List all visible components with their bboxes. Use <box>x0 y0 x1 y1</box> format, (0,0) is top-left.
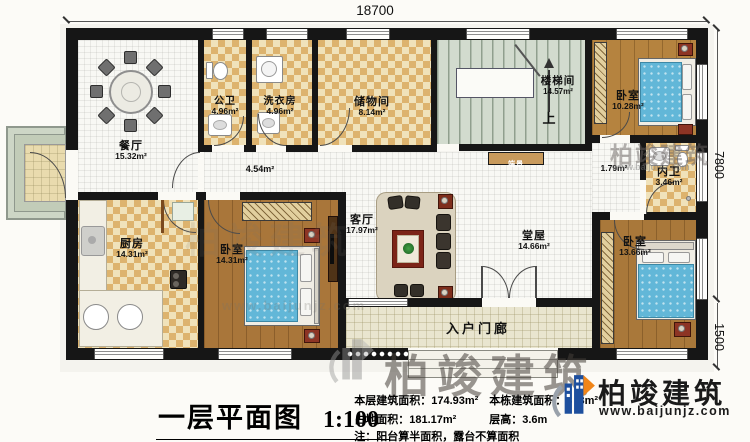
pillow-symbol <box>682 64 692 90</box>
cushion-symbol <box>436 233 451 250</box>
rect <box>342 348 350 380</box>
window <box>218 349 292 359</box>
lamp-symbol <box>308 332 315 339</box>
window <box>94 349 164 359</box>
door-opening <box>212 145 244 152</box>
floor-drain <box>686 196 691 201</box>
watermark-brand: 柏竣建筑 <box>185 212 353 264</box>
stat-story-height: 层高：3.6m <box>477 399 547 439</box>
span: 层高： <box>489 414 522 426</box>
lamp-symbol <box>441 289 448 296</box>
washing-machine-drum <box>261 61 277 77</box>
room-label-main-hall: 堂屋14.66m² <box>498 230 570 252</box>
wall-segment <box>437 144 592 151</box>
lamp-symbol <box>441 197 448 204</box>
console-table-label: 端景 <box>508 161 524 168</box>
room-label-kitchen: 厨房14.31m² <box>98 238 166 260</box>
rect <box>580 379 583 382</box>
room-area: 13.66m² <box>598 248 672 258</box>
cushion-symbol <box>410 284 424 297</box>
rect <box>567 394 570 397</box>
cushion-symbol <box>436 252 451 269</box>
nightstand-symbol <box>678 124 693 135</box>
lamp-symbol <box>678 325 685 332</box>
chair-symbol <box>90 85 103 98</box>
dimension-line <box>68 21 707 22</box>
span: 一层平面图 <box>158 403 303 433</box>
cushion-symbol <box>436 214 451 231</box>
room-name: 楼梯间 <box>528 76 588 88</box>
toilet-symbol <box>206 62 213 79</box>
span: 上 <box>542 111 555 126</box>
stove-symbol <box>170 270 187 289</box>
dimension-right-porch: 1500 <box>712 318 726 356</box>
chair-symbol <box>124 119 137 132</box>
room-label-stairwell: 楼梯间14.57m² <box>528 76 588 97</box>
dimension-right-main: 7800 <box>712 146 726 184</box>
dining-table-inner <box>121 82 141 102</box>
window <box>212 29 244 39</box>
lamp-symbol <box>681 45 688 52</box>
door-opening <box>158 192 196 200</box>
span: 3.6m <box>522 414 547 426</box>
dimension-tick <box>703 16 710 23</box>
window <box>346 29 390 39</box>
door-opening <box>256 145 286 152</box>
door-leaf <box>161 200 164 233</box>
door-opening <box>66 150 78 200</box>
cushion-symbol <box>387 195 404 210</box>
window <box>616 349 688 359</box>
dimension-tick <box>63 16 70 23</box>
stair-arrow-head <box>544 58 554 68</box>
door-opening <box>206 192 240 200</box>
window <box>466 29 530 39</box>
window <box>616 29 688 39</box>
plant-symbol <box>403 243 414 254</box>
window <box>697 238 707 300</box>
chair-symbol <box>158 85 171 98</box>
window <box>266 29 308 39</box>
door-opening <box>482 298 536 307</box>
room-label-dining: 餐厅15.32m² <box>98 140 164 162</box>
polygon <box>583 375 594 396</box>
room-area: 14.57m² <box>528 88 588 97</box>
brand-website: www.baijunjz.com <box>599 404 731 418</box>
kitchen-sink-symbol <box>83 304 109 330</box>
console-table: 端景 <box>488 152 544 165</box>
cushion-symbol <box>404 195 420 209</box>
stair-up-label: 上 <box>538 108 560 128</box>
room-area: 4.96m² <box>246 107 314 117</box>
watermark-url: www.baijunjz.com <box>612 162 690 172</box>
polygon <box>362 339 374 361</box>
room-label-laundry: 洗衣房4.96m² <box>246 96 314 117</box>
stair-landing <box>456 68 534 98</box>
room-label-corridor: 4.54m² <box>230 164 290 174</box>
rect <box>580 386 583 389</box>
cushion-symbol <box>394 284 408 297</box>
path <box>331 351 339 381</box>
span: 入户门廊 <box>446 321 510 336</box>
wall-segment <box>431 40 437 152</box>
floor-plan-page: 端景 餐厅15.32m² 公卫4.96m² 洗衣房4.96m² 储物间8.14m… <box>0 0 750 442</box>
room-area: 4.96m² <box>203 107 247 117</box>
brand-logo-icon <box>549 369 597 423</box>
kitchen-sink-symbol <box>117 304 143 330</box>
room-area: 3.46m² <box>640 178 698 188</box>
door-opening <box>318 145 352 152</box>
burner <box>173 281 179 287</box>
door-opening <box>610 212 644 220</box>
room-label-bedroom-br: 卧室13.66m² <box>598 236 672 258</box>
rect <box>567 388 570 391</box>
room-label-porch: 入户门廊 <box>408 320 548 338</box>
burner <box>173 273 179 279</box>
room-area: 14.31m² <box>98 250 166 260</box>
room-label-public-bath: 公卫4.96m² <box>203 96 247 117</box>
door-leaf <box>481 266 483 298</box>
room-label-storage: 储物间8.14m² <box>332 96 412 118</box>
room-area: 4.54m² <box>230 164 290 174</box>
toilet-bowl-symbol <box>213 62 228 80</box>
watermark-url: www.baijunjz.com <box>222 298 366 313</box>
room-area: 10.28m² <box>596 102 660 112</box>
window <box>697 64 707 120</box>
faucet-symbol <box>88 236 96 244</box>
room-label-bedroom-tr: 卧室10.28m² <box>596 90 660 112</box>
rect <box>576 379 579 382</box>
path <box>554 387 561 416</box>
chair-symbol <box>124 51 137 64</box>
door-opening <box>437 144 459 151</box>
room-area: 14.66m² <box>498 242 570 252</box>
dimension-top: 18700 <box>340 3 410 18</box>
pillow-symbol <box>682 94 692 120</box>
bed-blanket <box>638 264 694 318</box>
door-leaf <box>535 266 537 298</box>
room-area: 15.32m² <box>98 152 164 162</box>
room-area: 8.14m² <box>332 108 412 118</box>
rect <box>352 339 362 379</box>
rect <box>576 386 579 389</box>
